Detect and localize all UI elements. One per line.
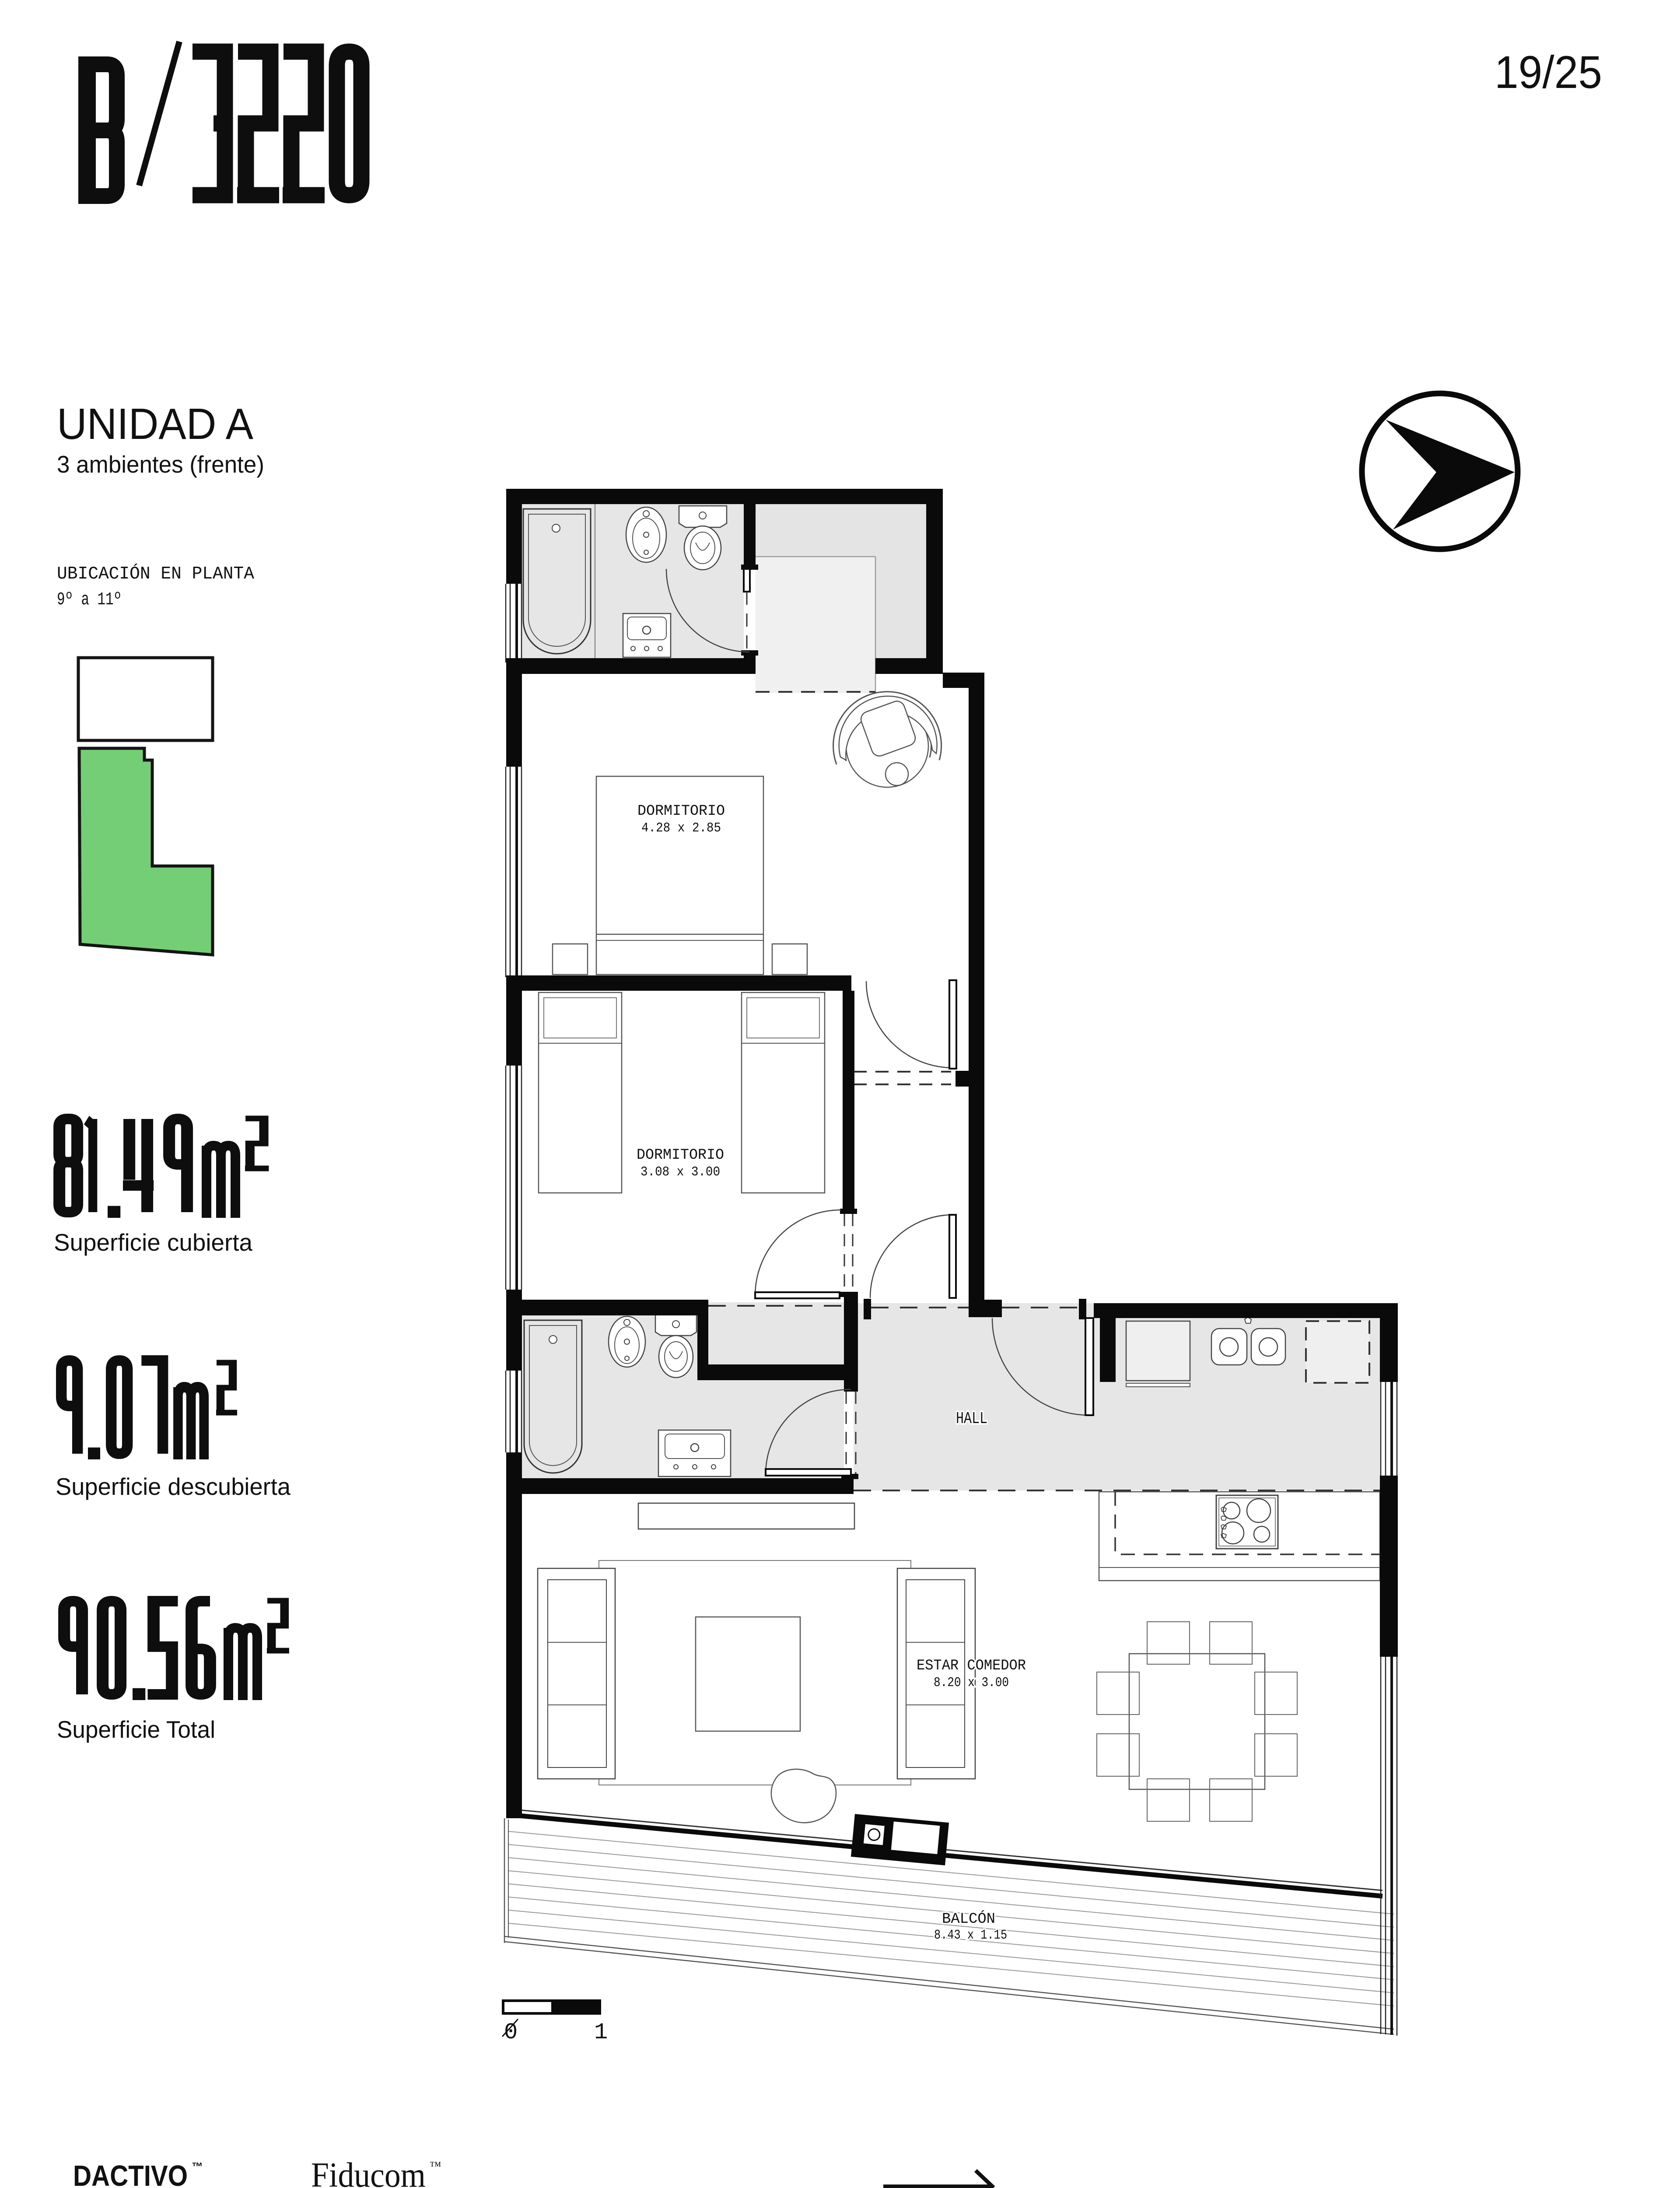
- svg-text:Superficie cubierta: Superficie cubierta: [54, 1229, 252, 1256]
- svg-text:Superficie descubierta: Superficie descubierta: [56, 1473, 290, 1500]
- svg-text:19/25: 19/25: [1494, 47, 1602, 98]
- svg-text:™: ™: [192, 2160, 203, 2173]
- svg-text:9º a 11º: 9º a 11º: [57, 590, 122, 610]
- svg-text:DORMITORIO: DORMITORIO: [637, 1147, 724, 1164]
- svg-text:DORMITORIO: DORMITORIO: [637, 803, 725, 820]
- svg-text:4.28 x 2.85: 4.28 x 2.85: [641, 820, 721, 836]
- svg-text:ESTAR COMEDOR: ESTAR COMEDOR: [917, 1658, 1026, 1674]
- svg-text:BALCÓN: BALCÓN: [942, 1911, 995, 1928]
- svg-text:Superficie Total: Superficie Total: [57, 1716, 215, 1743]
- svg-text:™: ™: [430, 2159, 441, 2172]
- svg-text:UBICACIÓN EN PLANTA: UBICACIÓN EN PLANTA: [57, 563, 254, 584]
- svg-text:8.43 x 1.15: 8.43 x 1.15: [934, 1928, 1007, 1943]
- svg-text:UNIDAD A: UNIDAD A: [57, 400, 253, 449]
- svg-text:HALL: HALL: [956, 1410, 987, 1428]
- svg-text:Fiducom: Fiducom: [311, 2156, 426, 2188]
- svg-text:DACTIVO: DACTIVO: [73, 2160, 188, 2188]
- svg-text:8.20 x 3.00: 8.20 x 3.00: [934, 1675, 1009, 1690]
- svg-text:1: 1: [594, 2020, 608, 2045]
- svg-text:3 ambientes (frente): 3 ambientes (frente): [57, 451, 264, 478]
- svg-text:3.08 x 3.00: 3.08 x 3.00: [640, 1164, 720, 1180]
